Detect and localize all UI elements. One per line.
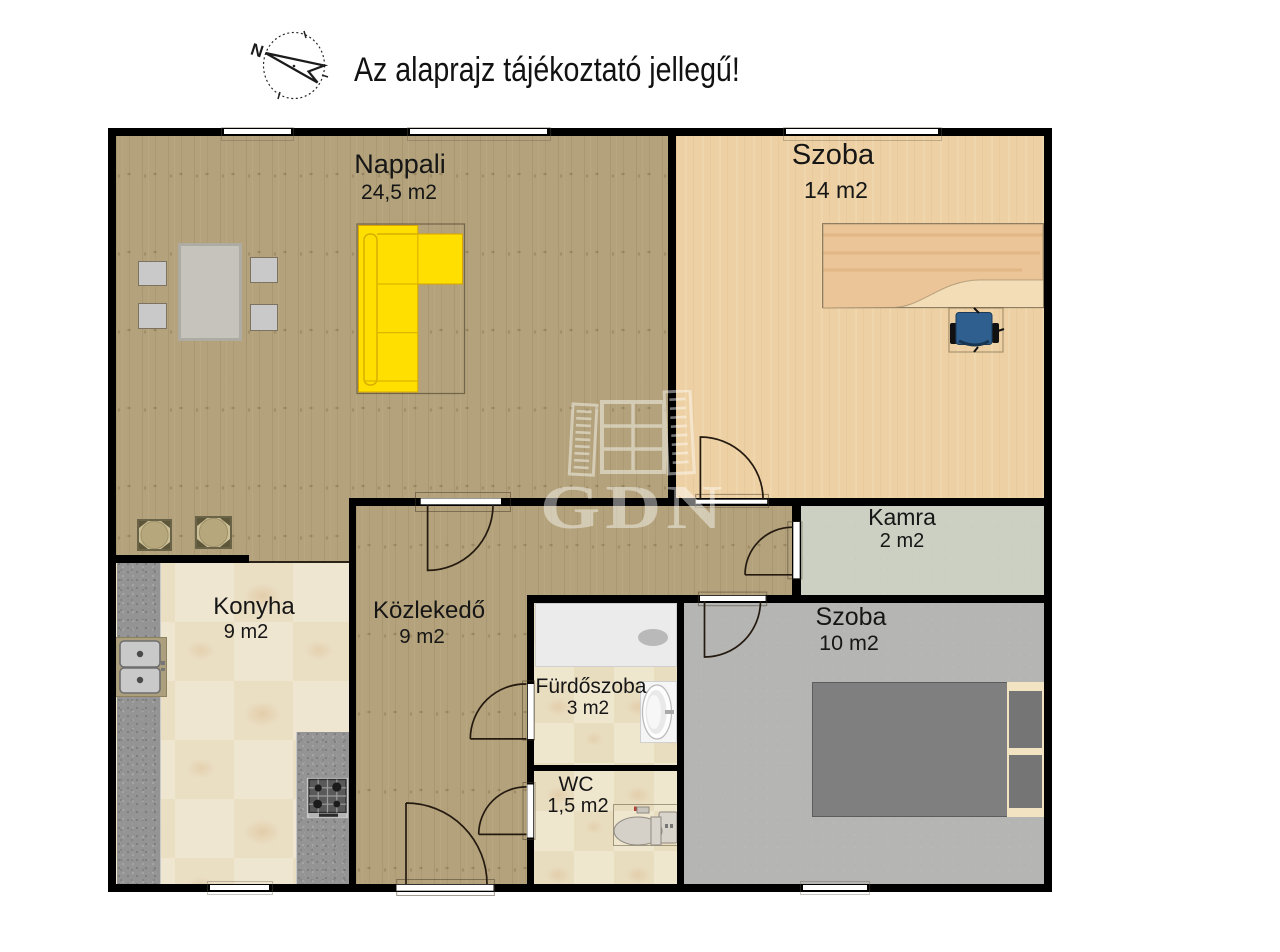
svg-text:N: N (248, 40, 266, 62)
